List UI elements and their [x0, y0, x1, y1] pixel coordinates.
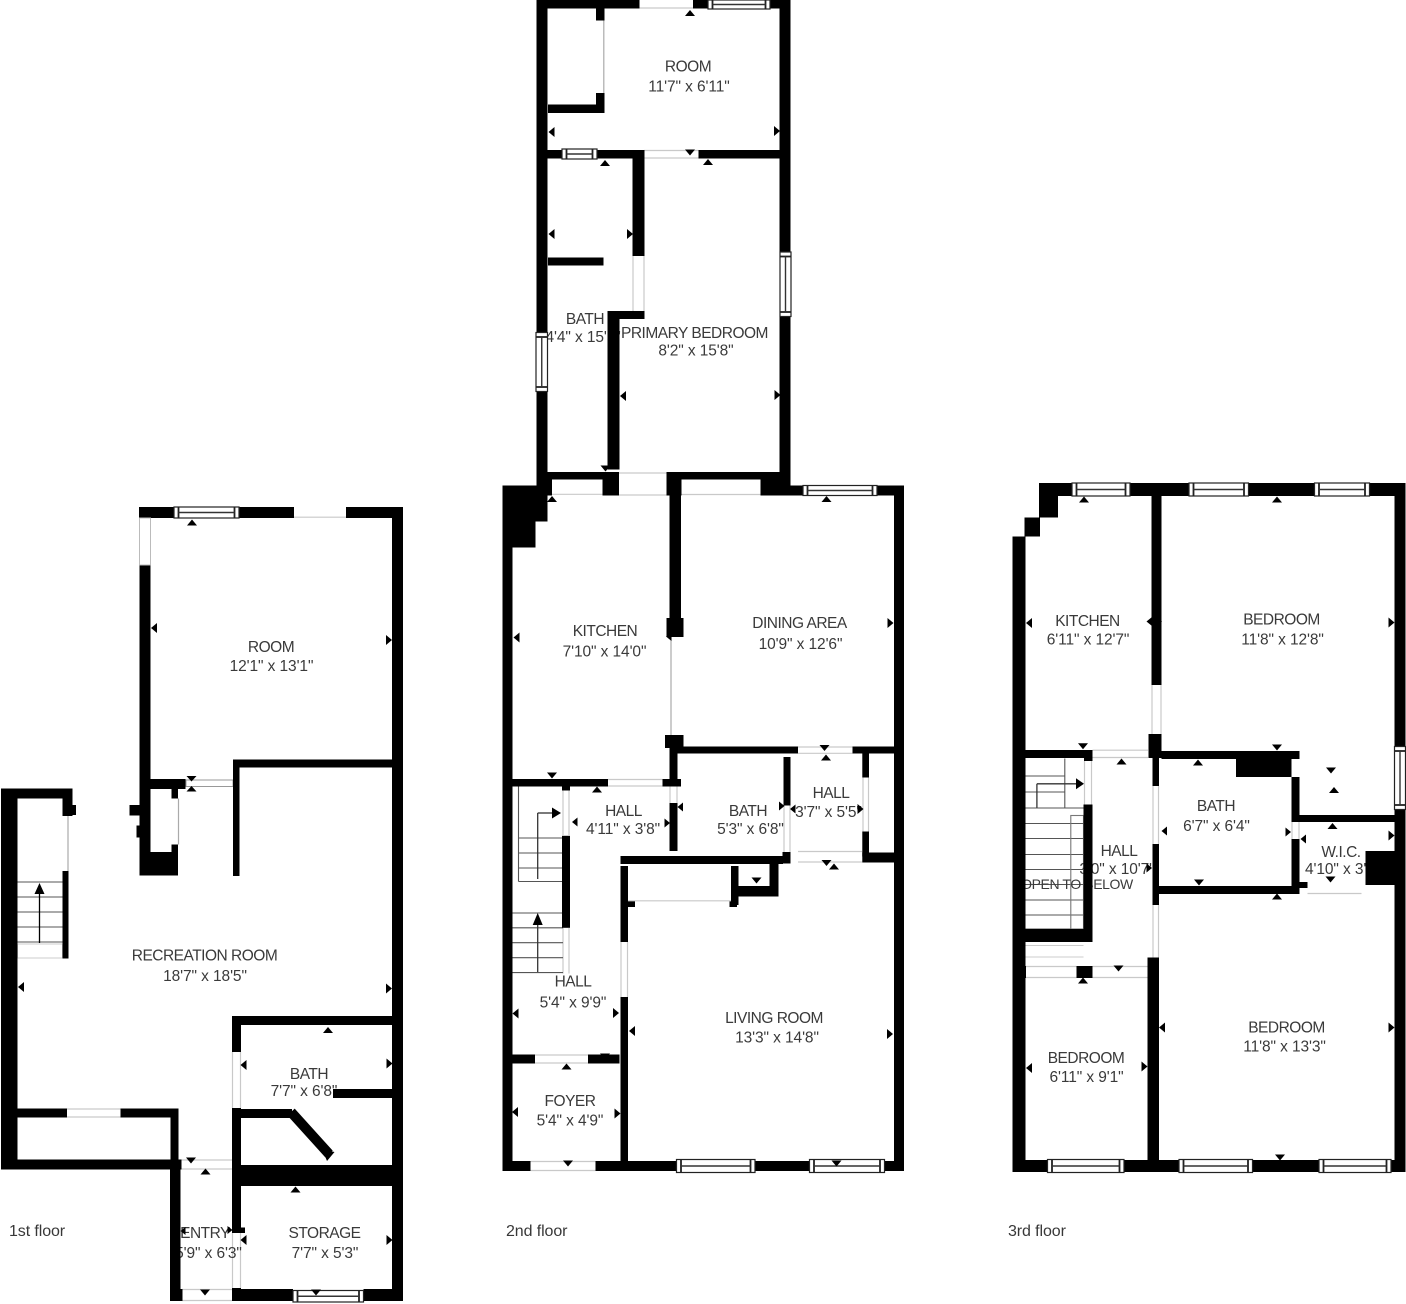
- svg-text:10'9" x 12'6": 10'9" x 12'6": [759, 636, 843, 653]
- svg-text:5'9" x 6'3": 5'9" x 6'3": [175, 1245, 242, 1262]
- svg-text:PRIMARY BEDROOM: PRIMARY BEDROOM: [621, 325, 768, 342]
- svg-text:5'4" x 9'9": 5'4" x 9'9": [540, 995, 607, 1012]
- svg-text:11'7" x 6'11": 11'7" x 6'11": [648, 79, 729, 96]
- svg-text:DINING AREA: DINING AREA: [752, 615, 848, 632]
- svg-text:KITCHEN: KITCHEN: [1055, 613, 1120, 630]
- svg-text:3rd floor: 3rd floor: [1008, 1223, 1067, 1240]
- svg-text:11'8" x 13'3": 11'8" x 13'3": [1243, 1039, 1326, 1056]
- svg-text:STORAGE: STORAGE: [288, 1225, 360, 1242]
- svg-text:BATH: BATH: [729, 803, 767, 820]
- svg-text:HALL: HALL: [605, 803, 643, 820]
- svg-text:BEDROOM: BEDROOM: [1243, 612, 1320, 629]
- svg-text:BATH: BATH: [290, 1066, 328, 1083]
- svg-text:HALL: HALL: [1101, 843, 1139, 860]
- svg-text:12'1" x 13'1": 12'1" x 13'1": [230, 658, 314, 675]
- svg-text:7'7" x 5'3": 7'7" x 5'3": [292, 1245, 359, 1262]
- svg-text:LIVING ROOM: LIVING ROOM: [725, 1010, 823, 1027]
- svg-text:HALL: HALL: [813, 785, 851, 802]
- svg-text:11'8" x 12'8": 11'8" x 12'8": [1241, 632, 1324, 649]
- svg-text:6'11" x 9'1": 6'11" x 9'1": [1049, 1069, 1123, 1086]
- svg-text:RECREATION ROOM: RECREATION ROOM: [132, 948, 278, 965]
- svg-text:BEDROOM: BEDROOM: [1048, 1050, 1125, 1067]
- svg-text:ROOM: ROOM: [248, 639, 294, 656]
- svg-text:HALL: HALL: [555, 974, 593, 991]
- svg-text:1st floor: 1st floor: [9, 1223, 66, 1240]
- svg-text:OPEN TO BELOW: OPEN TO BELOW: [1021, 876, 1134, 892]
- svg-text:2nd floor: 2nd floor: [506, 1223, 568, 1240]
- svg-text:BEDROOM: BEDROOM: [1248, 1020, 1325, 1037]
- svg-text:BATH: BATH: [1197, 798, 1235, 815]
- svg-text:BATH: BATH: [566, 311, 604, 328]
- svg-text:8'2" x 15'8": 8'2" x 15'8": [658, 343, 733, 360]
- svg-text:13'3" x 14'8": 13'3" x 14'8": [735, 1030, 819, 1047]
- svg-text:7'10" x 14'0": 7'10" x 14'0": [563, 644, 647, 661]
- svg-text:ENTRY: ENTRY: [180, 1225, 230, 1242]
- svg-text:4'11" x 3'8": 4'11" x 3'8": [586, 821, 660, 838]
- svg-text:6'7" x 6'4": 6'7" x 6'4": [1183, 818, 1250, 835]
- svg-text:18'7" x 18'5": 18'7" x 18'5": [163, 968, 247, 985]
- svg-text:5'4" x 4'9": 5'4" x 4'9": [537, 1113, 604, 1130]
- svg-text:6'11" x 12'7": 6'11" x 12'7": [1047, 632, 1130, 649]
- svg-text:5'3" x 6'8": 5'3" x 6'8": [717, 821, 784, 838]
- svg-text:KITCHEN: KITCHEN: [573, 623, 638, 640]
- svg-text:W.I.C.: W.I.C.: [1321, 844, 1360, 861]
- svg-text:ROOM: ROOM: [665, 59, 711, 76]
- svg-text:FOYER: FOYER: [545, 1093, 596, 1110]
- svg-text:7'7" x 6'8": 7'7" x 6'8": [271, 1083, 338, 1100]
- svg-text:3'7" x 5'5": 3'7" x 5'5": [795, 804, 862, 821]
